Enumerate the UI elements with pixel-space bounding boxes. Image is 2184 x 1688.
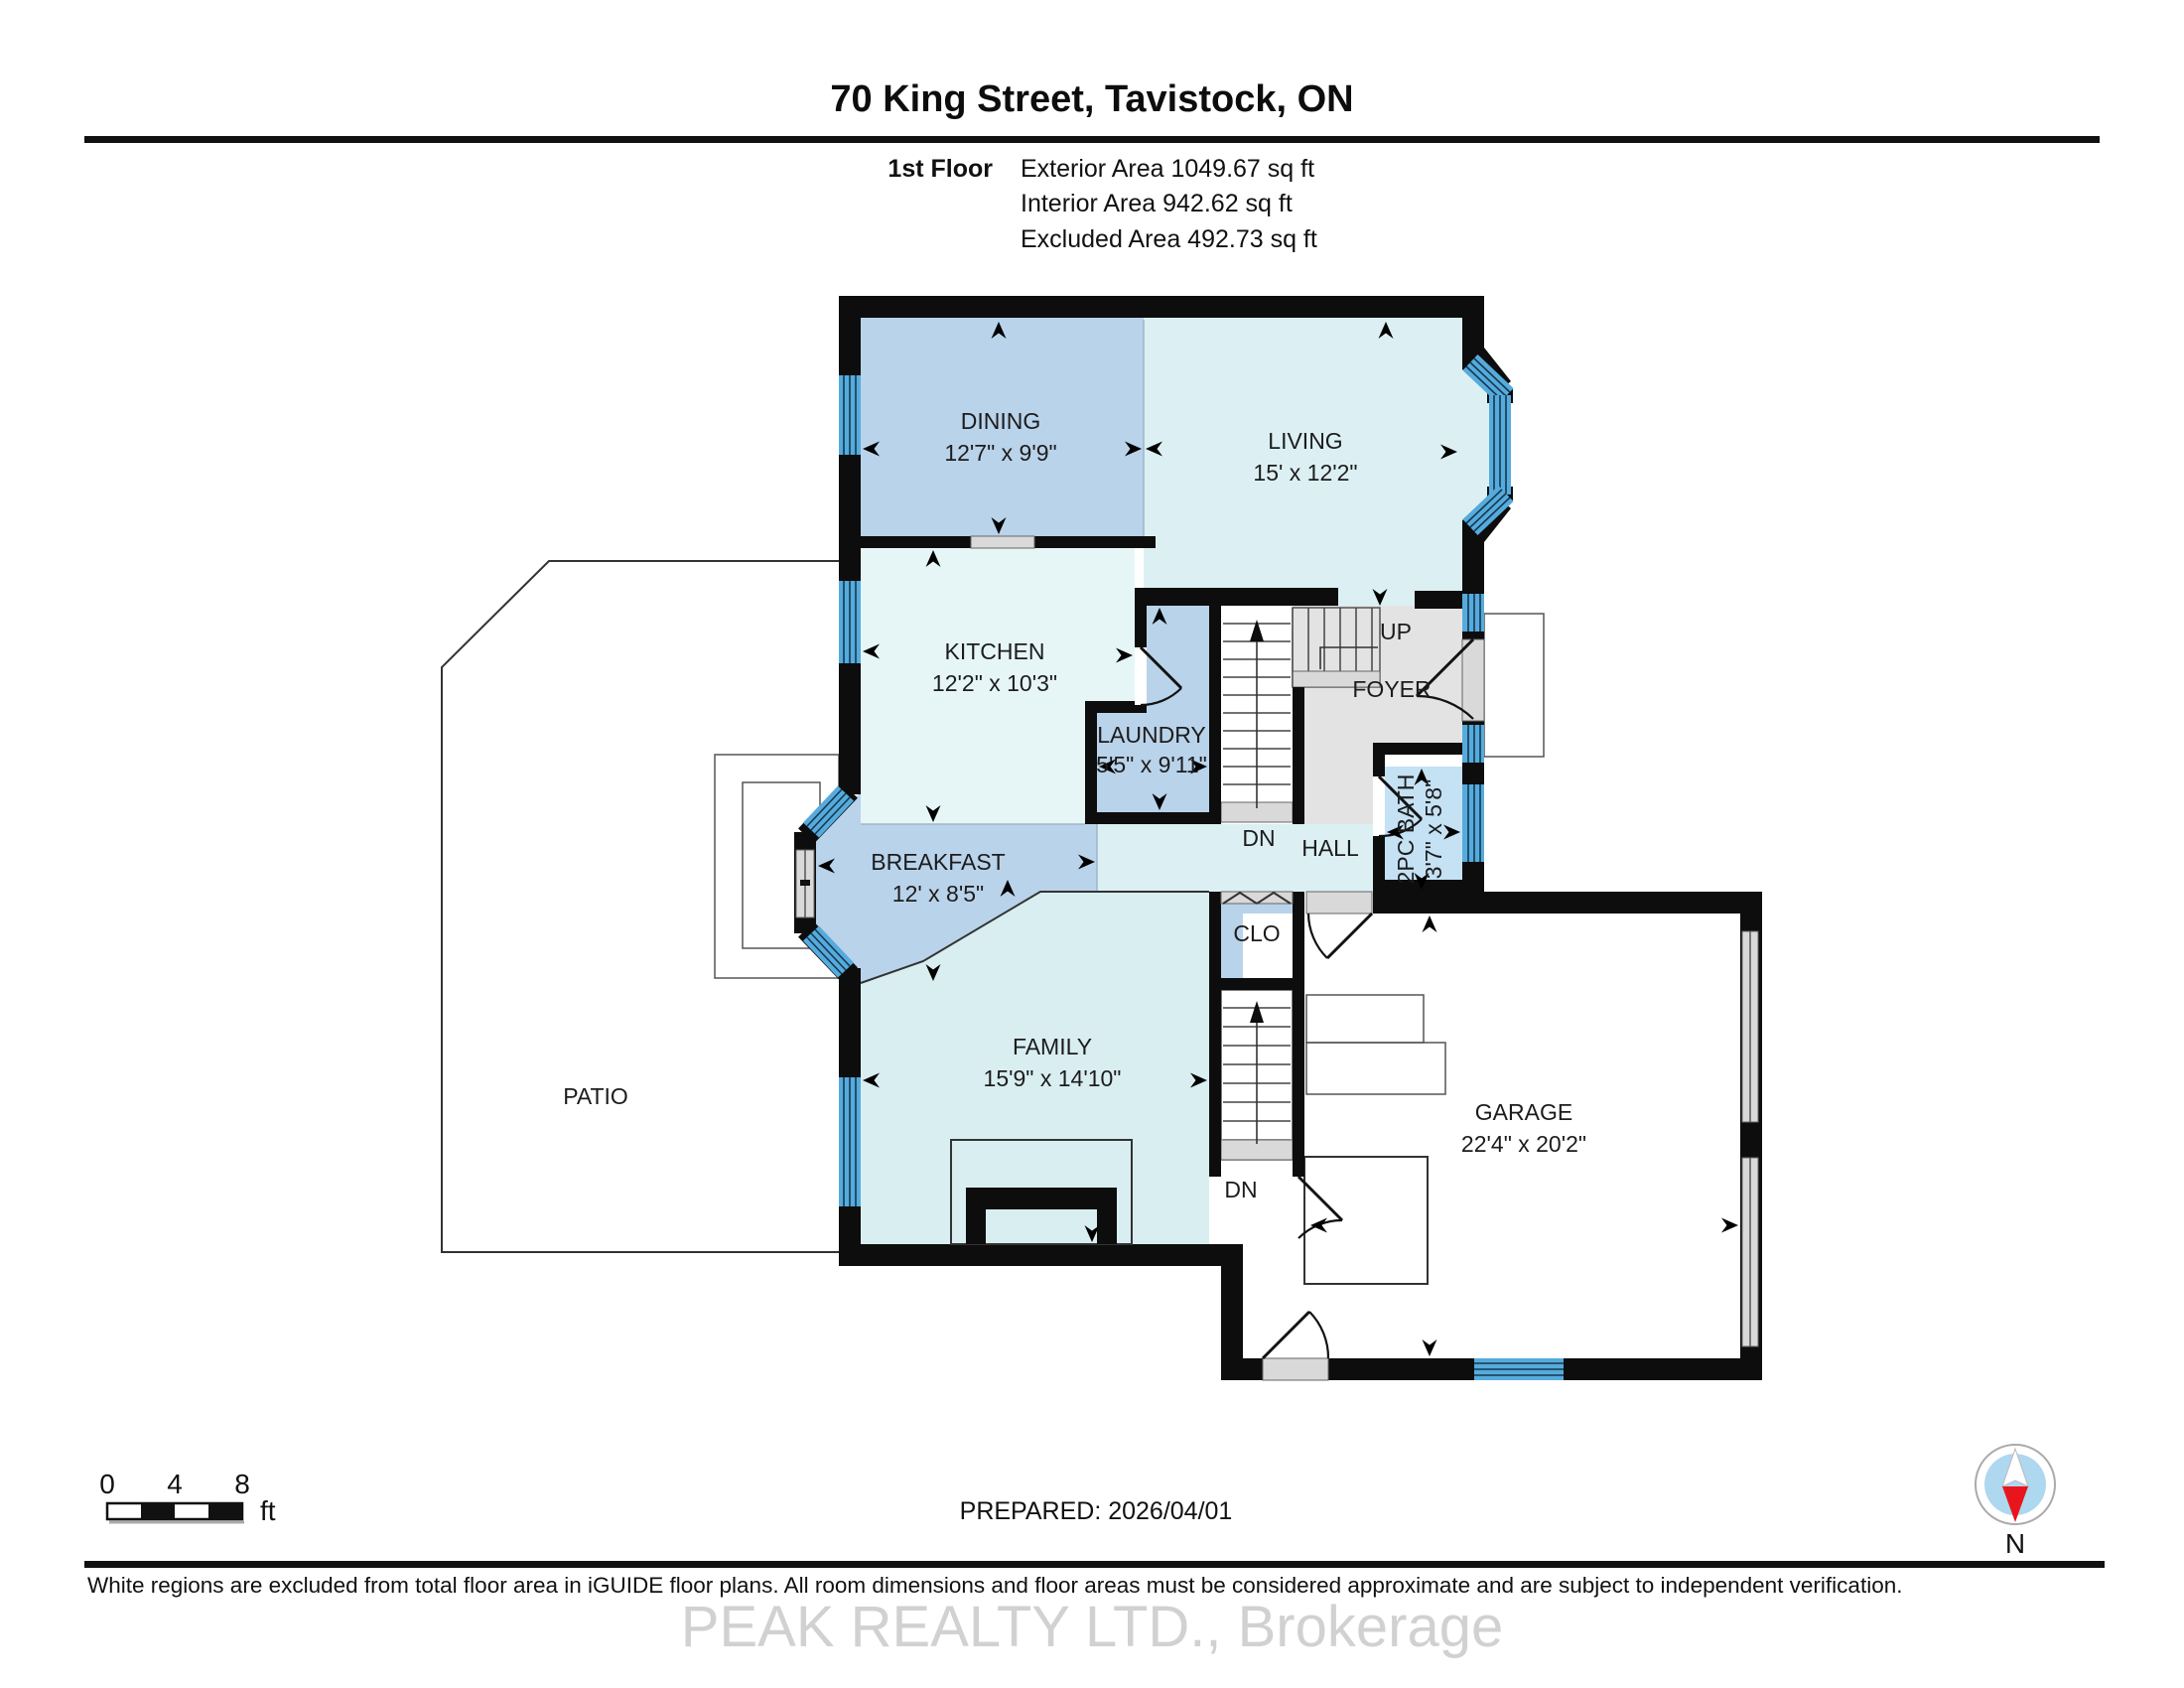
room-dims-breakfast: 12' x 8'5" [892,881,984,907]
footer: PEAK REALTY LTD., Brokerage White region… [84,1561,2105,1659]
header-rule [84,136,2100,143]
scale-bar: 0 4 8 ft [99,1469,276,1526]
patio-outline [442,561,839,1252]
floor-plan-page: 70 King Street, Tavistock, ON 1st Floor … [0,0,2184,1688]
closet-label: CLO [1233,920,1280,946]
header: 70 King Street, Tavistock, ON 1st Floor … [84,78,2100,253]
scale-unit: ft [260,1495,276,1526]
kitchen-window [839,581,861,663]
room-label-laundry: LAUNDRY [1097,722,1206,748]
patio-slider-door [796,850,814,917]
stairs-up-label: UP [1380,619,1412,644]
room-label-foyer: FOYER [1352,676,1431,702]
footer-rule [84,1561,2105,1568]
floor-plan-svg: 70 King Street, Tavistock, ON 1st Floor … [0,0,2184,1688]
page-title: 70 King Street, Tavistock, ON [830,78,1353,120]
disclaimer-text: White regions are excluded from total fl… [87,1573,1902,1598]
dining-kitchen-opening [971,536,1034,548]
room-dims-living: 15' x 12'2" [1253,460,1357,486]
exterior-area: Exterior Area 1049.67 sq ft [1021,155,1314,183]
interior-area: Interior Area 942.62 sq ft [1021,190,1293,217]
room-label-kitchen: KITCHEN [945,638,1045,664]
room-dims-dining: 12'7" x 9'9" [944,440,1056,466]
bath-window [1462,784,1484,862]
room-dims-kitchen: 12'2" x 10'3" [932,670,1057,696]
room-label-breakfast: BREAKFAST [871,849,1005,875]
prepared-date: PREPARED: 2026/04/01 [960,1497,1233,1525]
foyer-area-lower [1293,755,1373,824]
room-dims-bath: 3'7" x 5'8" [1421,779,1446,880]
floor-label: 1st Floor [887,155,993,183]
patio-label: PATIO [563,1083,628,1109]
closet-bifold-door [1221,892,1293,904]
front-porch [1484,614,1544,757]
brokerage-watermark: PEAK REALTY LTD., Brokerage [681,1595,1503,1659]
stairs-dn-lower-label: DN [1224,1177,1257,1202]
room-dims-laundry: 5'5" x 9'11" [1096,752,1207,777]
room-label-garage: GARAGE [1475,1099,1572,1125]
compass: N [1976,1445,2055,1559]
room-dims-family: 15'9" x 14'10" [984,1065,1122,1091]
scale-tick-4: 4 [167,1469,183,1499]
garage-window [1474,1358,1564,1380]
room-label-living: LIVING [1268,428,1342,454]
scale-tick-0: 0 [99,1469,115,1499]
scale-tick-8: 8 [234,1469,250,1499]
room-label-dining: DINING [961,408,1041,434]
excluded-area: Excluded Area 492.73 sq ft [1021,225,1317,253]
family-window [839,1077,861,1206]
room-label-hall: HALL [1301,835,1359,861]
stairs-dn-upper-label: DN [1242,825,1275,851]
compass-north-label: N [2005,1528,2025,1559]
dining-window [839,375,861,455]
room-label-bath: 2PC BATH [1393,774,1419,885]
room-dims-garage: 22'4" x 20'2" [1461,1131,1586,1157]
room-label-family: FAMILY [1013,1034,1092,1059]
